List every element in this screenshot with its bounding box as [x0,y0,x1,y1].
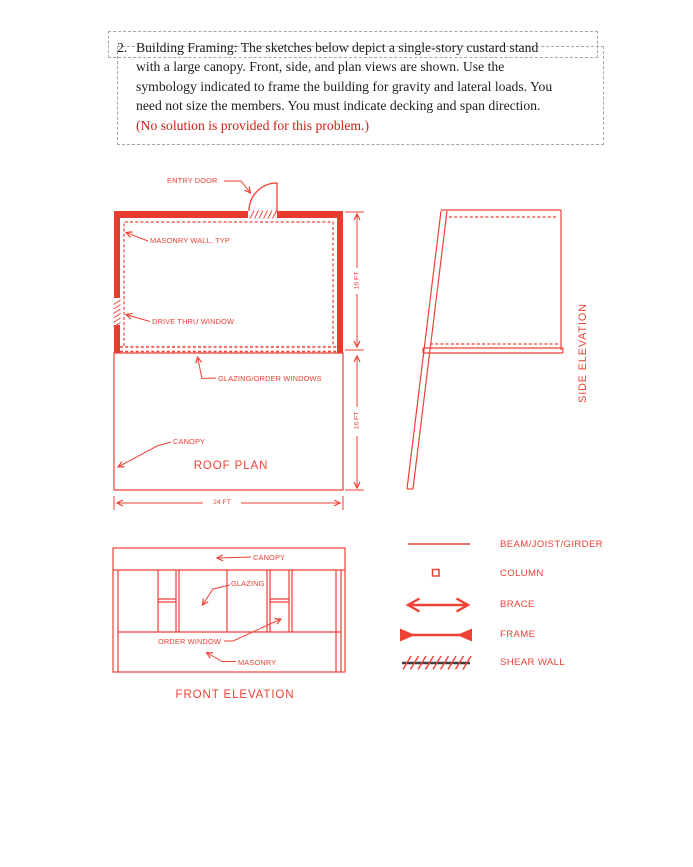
brace-symbol [408,599,468,612]
door-swing-arc [249,183,277,212]
drive-thru-leader [126,315,150,322]
entry-door-leader [224,181,251,193]
right-masonry-wall [337,211,343,353]
front-elevation-linework [113,548,345,672]
masonry-wall-leader [126,233,148,242]
right-dimension-lines [345,212,364,490]
dimension-16ft-canopy: 16 FT [354,406,361,436]
entry-door-label: ENTRY DOOR [167,176,218,185]
legend-label-beam: BEAM/JOIST/GIRDER [500,539,603,550]
legend-symbols [400,544,472,670]
top-masonry-wall [114,211,343,218]
masonry-wall-label: MASONRY WALL, TYP [150,236,230,245]
dimension-16ft-building: 16 FT [354,266,361,296]
front-canopy-leader [217,557,251,558]
front-order-window-label: ORDER WINDOW [158,637,221,646]
entry-door-opening-hatch [248,211,277,219]
roof-plan-title: ROOF PLAN [185,460,277,472]
problem-page: 2. Building Framing: The sketches below … [0,0,693,867]
front-outer-rect [113,548,345,672]
shear-wall-symbol [402,656,471,670]
canopy-slope-line-2 [413,211,447,489]
column-symbol [433,570,440,577]
front-masonry-leader [207,653,237,662]
legend-label-brace: BRACE [500,599,535,610]
glazing-order-windows-label: GLAZING/ORDER WINDOWS [218,374,322,383]
glazing-order-leader [198,357,217,379]
drive-thru-opening-hatch [114,298,121,327]
roof-canopy-label: CANOPY [173,437,205,446]
legend-label-shear-wall: SHEAR WALL [500,657,565,668]
front-masonry-label: MASONRY [238,658,276,667]
legend-label-column: COLUMN [500,568,544,579]
side-elevation-title: SIDE ELEVATION [577,298,589,408]
canopy-slope-line-1 [407,211,441,489]
front-glazing-label: GLAZING [231,579,265,588]
front-canopy-label: CANOPY [253,553,285,562]
left-masonry-wall [114,211,120,353]
side-elevation-linework [407,210,563,489]
front-glazing-leader [203,585,231,605]
front-elevation-title: FRONT ELEVATION [170,689,300,701]
drawing-canvas [0,0,693,867]
frame-symbol [400,629,472,642]
front-order-window-leader [224,619,281,641]
drive-thru-window-label: DRIVE THRU WINDOW [152,317,234,326]
legend-label-frame: FRAME [500,629,535,640]
canopy-leader [118,442,171,467]
dimension-24ft: 24 FT [202,499,242,506]
